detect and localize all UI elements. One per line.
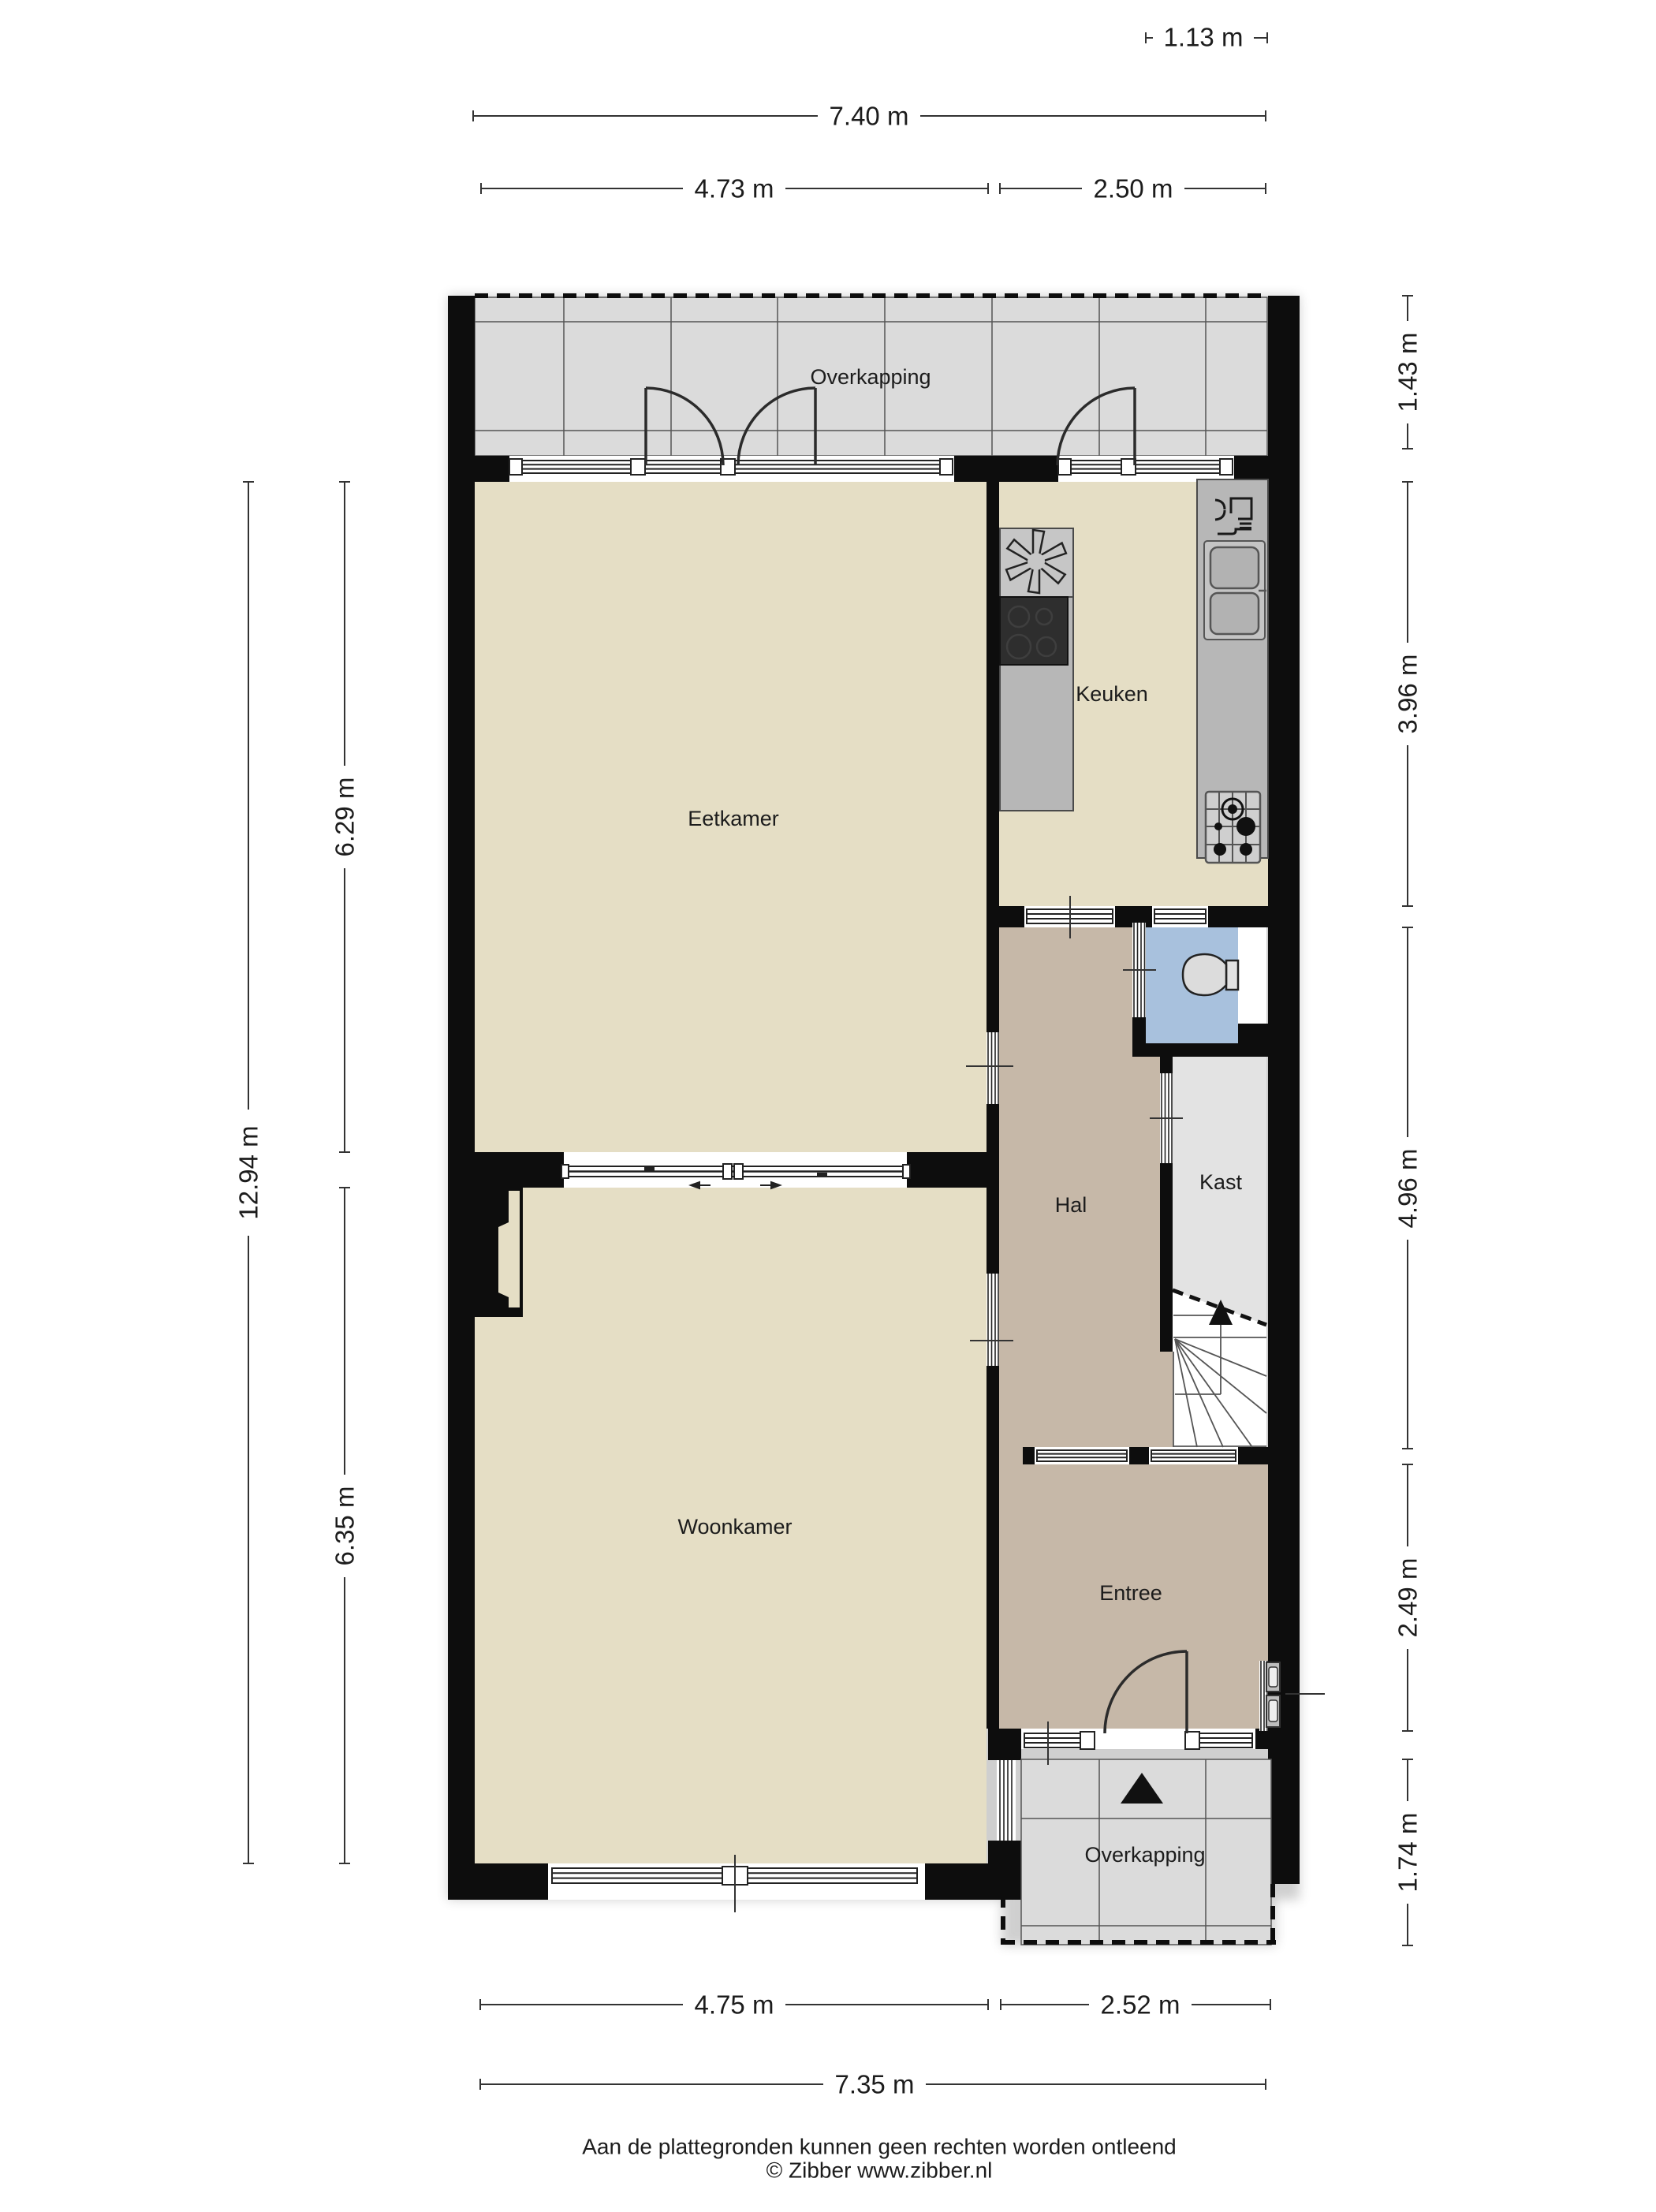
svg-text:1.13 m: 1.13 m [1164, 23, 1244, 52]
svg-text:Kast: Kast [1199, 1170, 1243, 1194]
svg-text:Overkapping: Overkapping [1084, 1843, 1205, 1867]
svg-text:3.96 m: 3.96 m [1393, 655, 1423, 734]
svg-text:© Zibber www.zibber.nl: © Zibber www.zibber.nl [766, 2158, 993, 2183]
svg-text:Overkapping: Overkapping [810, 365, 931, 389]
svg-text:12.94 m: 12.94 m [234, 1125, 263, 1219]
svg-text:Woonkamer: Woonkamer [677, 1515, 792, 1539]
svg-text:7.35 m: 7.35 m [835, 2070, 915, 2099]
svg-text:Keuken: Keuken [1076, 682, 1148, 706]
svg-text:2.50 m: 2.50 m [1094, 174, 1173, 203]
svg-text:1.74 m: 1.74 m [1393, 1813, 1423, 1893]
svg-text:4.73 m: 4.73 m [695, 174, 774, 203]
svg-text:4.75 m: 4.75 m [695, 1990, 774, 2020]
svg-text:6.29 m: 6.29 m [330, 778, 360, 857]
svg-text:Entree: Entree [1099, 1581, 1162, 1605]
svg-text:Eetkamer: Eetkamer [688, 807, 779, 830]
svg-text:1.43 m: 1.43 m [1393, 333, 1423, 412]
svg-text:Hal: Hal [1055, 1193, 1087, 1217]
svg-text:2.49 m: 2.49 m [1393, 1558, 1423, 1638]
svg-text:Aan de plattegronden kunnen ge: Aan de plattegronden kunnen geen rechten… [582, 2135, 1176, 2159]
svg-text:7.40 m: 7.40 m [830, 102, 909, 131]
svg-text:2.52 m: 2.52 m [1101, 1990, 1180, 2020]
svg-text:6.35 m: 6.35 m [330, 1486, 360, 1566]
svg-text:4.96 m: 4.96 m [1393, 1149, 1423, 1229]
